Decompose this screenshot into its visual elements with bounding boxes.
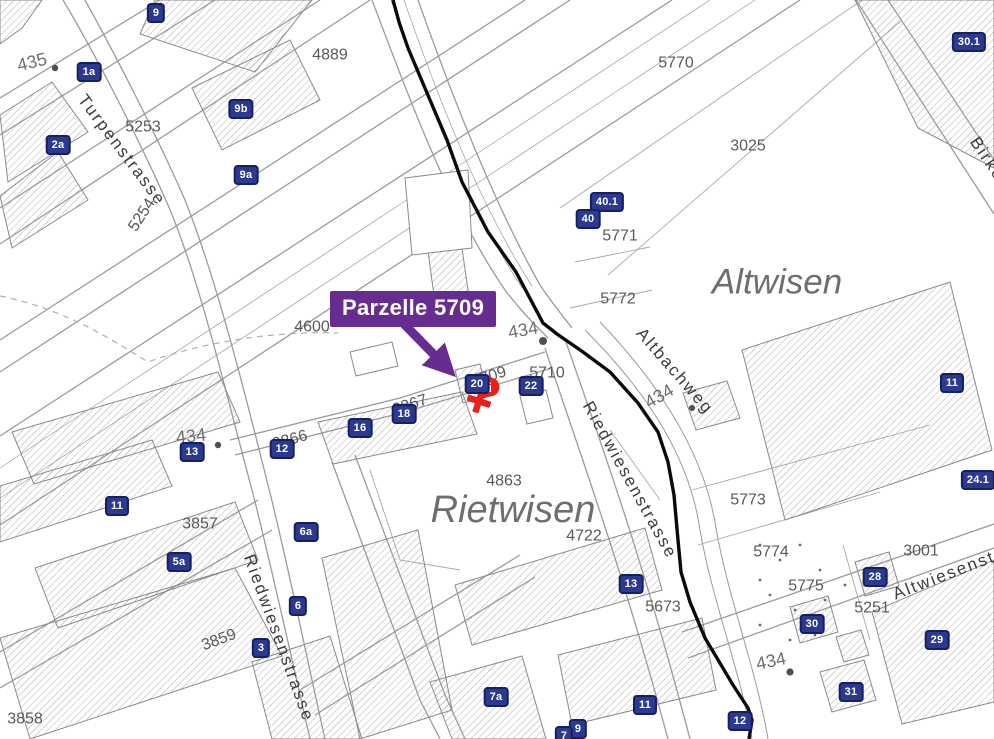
- dot: [769, 594, 772, 597]
- house-number-badge: 18: [392, 404, 417, 424]
- house-number-badge: 9b: [228, 99, 253, 119]
- building: [836, 630, 869, 662]
- map-drawing: 4889 5253 5254 5770 3025 5771 5772 4600 …: [0, 0, 994, 739]
- contour-dashed-line: [0, 296, 338, 362]
- house-number-badge: 9a: [234, 165, 259, 185]
- house-number-badge: 40: [576, 209, 601, 229]
- building: [0, 0, 42, 44]
- building-outline: [350, 342, 398, 376]
- parcel-label: 5772: [600, 291, 636, 308]
- contour-label: 434: [754, 648, 788, 674]
- parcel-label: 5775: [788, 578, 824, 595]
- contour-label: 434: [506, 318, 539, 343]
- house-number-badge: 12: [728, 711, 753, 731]
- area-label-altwisen: Altwisen: [710, 263, 842, 302]
- house-number-badge: 13: [619, 574, 644, 594]
- parcel-label: 4600: [294, 319, 330, 336]
- dot: [814, 634, 817, 637]
- house-number-badge: 11: [105, 496, 129, 516]
- parcel-label: 3025: [730, 138, 766, 155]
- parcel-line: [575, 247, 650, 262]
- house-number-badge: 13: [180, 442, 205, 462]
- house-number-badge: 5a: [167, 552, 192, 572]
- house-number-badge: 30: [800, 614, 825, 634]
- house-number-badge: 22: [519, 376, 544, 396]
- house-number-badge: 9: [147, 3, 165, 23]
- house-number-badge: 7: [555, 726, 573, 739]
- parcel-label: 5773: [730, 492, 766, 509]
- dot: [824, 599, 827, 602]
- parcel-label: 3001: [903, 543, 939, 560]
- house-number-badge: 2a: [46, 135, 71, 155]
- dot: [799, 544, 802, 547]
- map-canvas[interactable]: 4889 5253 5254 5770 3025 5771 5772 4600 …: [0, 0, 994, 739]
- house-number-badge: 30.1: [952, 32, 986, 52]
- house-number-badge: 6a: [294, 522, 319, 542]
- parcel-label: 5253: [125, 119, 161, 136]
- survey-point: [52, 65, 58, 71]
- house-number-badge: 11: [633, 695, 657, 715]
- dot: [789, 639, 792, 642]
- parcel-label: 5770: [658, 55, 694, 72]
- house-number-badge: 11: [940, 373, 964, 393]
- house-number-badge: 24.1: [961, 470, 994, 490]
- parcel-label: 3857: [182, 516, 218, 533]
- house-number-badge: 28: [863, 567, 888, 587]
- parcel-line: [560, 0, 862, 208]
- survey-point: [539, 337, 547, 345]
- parcel-label: 5774: [753, 544, 789, 561]
- dot: [794, 609, 797, 612]
- dot: [759, 579, 762, 582]
- house-number-badge: 20: [465, 374, 490, 394]
- parcel-label: 4889: [312, 47, 348, 64]
- survey-point: [786, 668, 793, 675]
- house-number-badge: 31: [839, 682, 864, 702]
- house-number-badge: 16: [348, 418, 373, 438]
- parcel-label: 4863: [486, 473, 522, 490]
- contour-label: 434: [641, 380, 677, 412]
- house-number-badge: 29: [925, 630, 950, 650]
- parcel-label: 5771: [602, 228, 638, 245]
- house-number-badge: 3: [252, 638, 270, 658]
- parcel-label: 5251: [854, 600, 890, 617]
- house-number-badge: 6: [289, 596, 307, 616]
- parcel-label: 5673: [645, 599, 681, 616]
- area-label-rietwisen: Rietwisen: [431, 489, 596, 531]
- survey-point: [215, 442, 221, 448]
- house-number-badge: 1a: [77, 62, 102, 82]
- dot: [844, 584, 847, 587]
- callout-arrow: [404, 324, 448, 369]
- dot: [759, 624, 762, 627]
- house-number-badge: 7a: [484, 687, 509, 707]
- parcel-label: 3858: [7, 711, 43, 728]
- parcel-callout: Parzelle 5709: [330, 291, 496, 327]
- house-number-badge: 12: [270, 439, 295, 459]
- dot: [819, 569, 822, 572]
- building: [742, 282, 992, 520]
